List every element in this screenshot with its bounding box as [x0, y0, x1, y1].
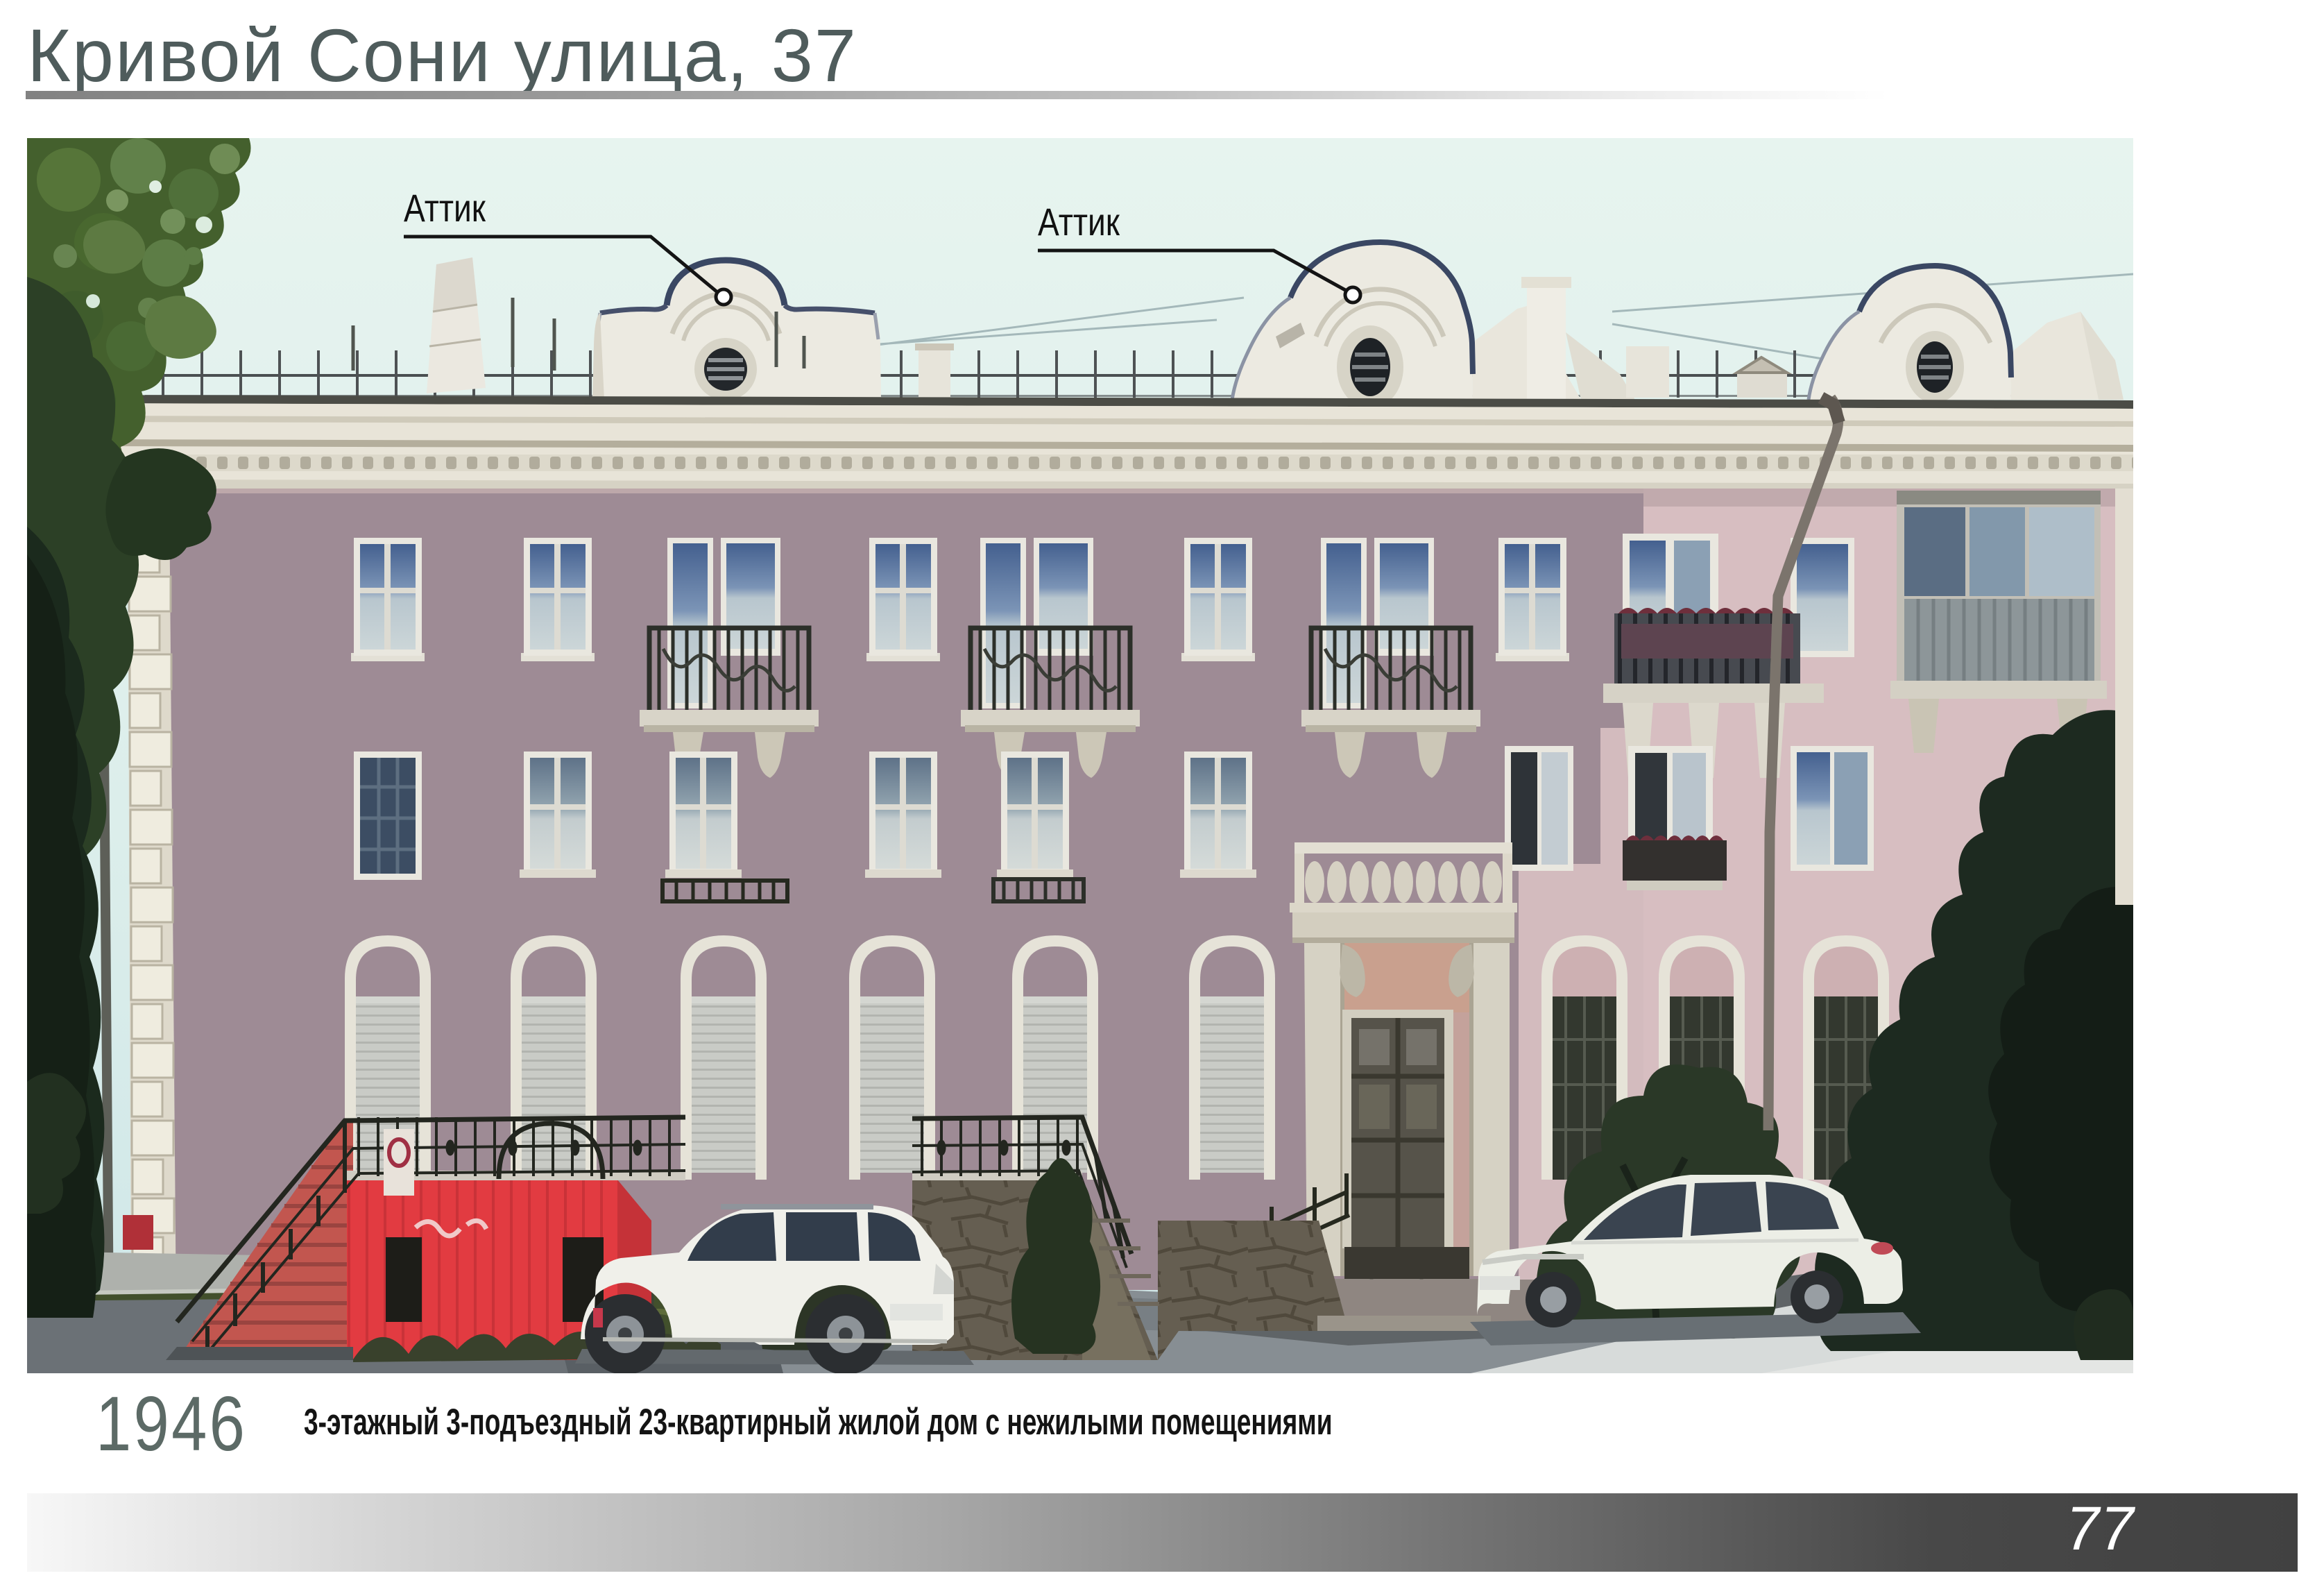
svg-text:Аттик: Аттик — [404, 186, 486, 230]
svg-text:Аттик: Аттик — [1038, 200, 1120, 244]
